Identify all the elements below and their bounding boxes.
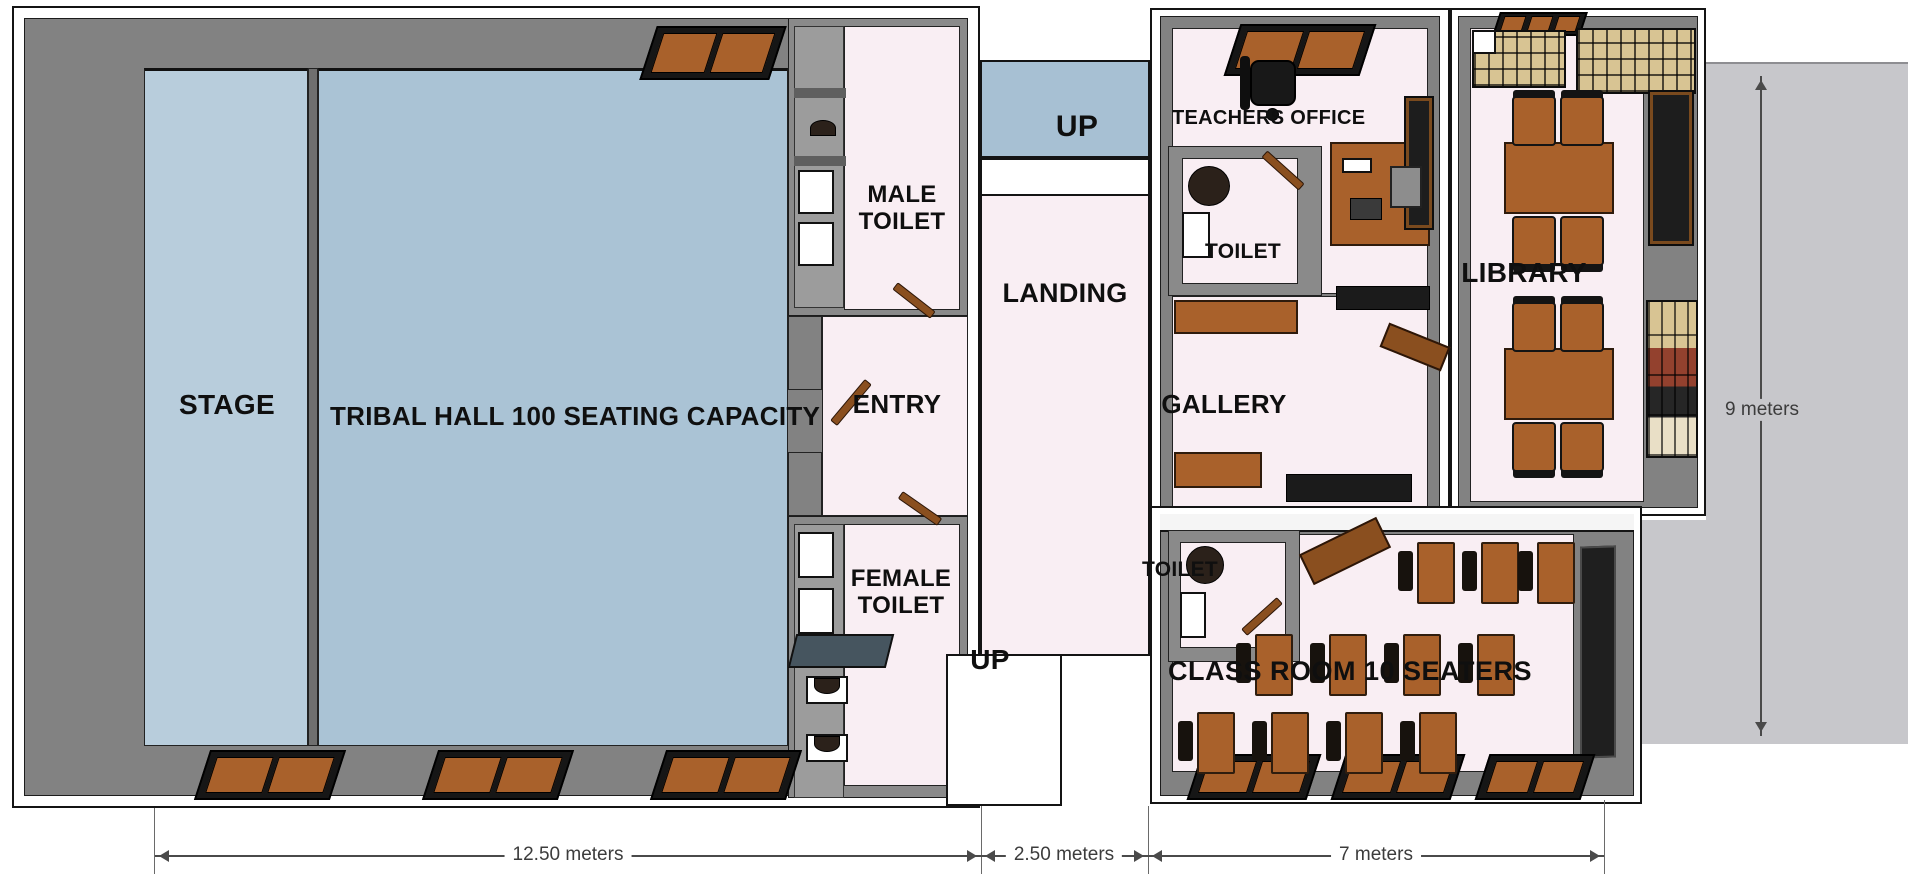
library-side-window: [1650, 92, 1692, 244]
stair-lower: [946, 654, 1062, 806]
gallery-desk-bottom: [1286, 474, 1412, 502]
teachers-office-label: TEACHERS OFFICE: [1172, 107, 1362, 129]
computer-keyboard: [1350, 198, 1382, 220]
basin-bowl: [814, 736, 840, 752]
library-chair: [1512, 96, 1556, 146]
student-desk: [1178, 712, 1232, 770]
entry-wall-upper: [788, 316, 822, 390]
student-desk: [1462, 542, 1516, 600]
hall-window-3: [650, 750, 802, 800]
library-chair: [1560, 96, 1604, 146]
student-desk: [1400, 712, 1454, 770]
hall-label: TRIBAL HALL 100 SEATING CAPACITY: [330, 402, 820, 431]
entry-label: ENTRY: [836, 390, 958, 419]
extension-line: [154, 808, 155, 874]
library-table: [1504, 142, 1614, 214]
library-chair: [1512, 422, 1556, 472]
student-desk: [1518, 542, 1572, 600]
bookshelf-end: [1472, 30, 1496, 54]
landing-floor: [980, 196, 1150, 656]
student-desk: [1398, 542, 1452, 600]
office-toilet-label: TOILET: [1182, 240, 1304, 264]
hall-window-1: [194, 750, 346, 800]
gallery-bench: [1174, 452, 1262, 488]
library-table: [1504, 348, 1614, 420]
hall-width-label: 12.50 meters: [505, 844, 632, 866]
classroom-toilet-label: TOILET: [1124, 558, 1236, 582]
hall-roof-vent: [639, 26, 787, 80]
library-chair: [1560, 302, 1604, 352]
toilet-person: [1188, 166, 1230, 206]
wc-fixture: [798, 170, 834, 214]
female-toilet-label: FEMALE TOILET: [826, 566, 976, 620]
landing-label: LANDING: [973, 278, 1157, 308]
classroom-label: CLASS ROOM 10 SEATERS: [1168, 656, 1508, 686]
library-chair: [1560, 422, 1604, 472]
desk-paper: [1342, 158, 1372, 173]
gallery-counter: [1174, 300, 1298, 334]
blackboard: [1580, 545, 1616, 758]
gallery-table: [1336, 286, 1430, 310]
student-desk: [1326, 712, 1380, 770]
side-annotation-area-lower: [1642, 520, 1708, 744]
stair-lower-label: UP: [950, 644, 1030, 675]
stage-label: STAGE: [145, 389, 309, 420]
gallery-label: GALLERY: [1140, 390, 1308, 419]
stall-partition: [794, 88, 846, 98]
office-chair-back: [1240, 56, 1250, 110]
library-top-bookshelf-2: [1576, 28, 1696, 94]
classroom-width-label: 7 meters: [1331, 844, 1421, 866]
library-label: LIBRARY: [1440, 257, 1608, 288]
hall-window-2: [422, 750, 574, 800]
stage-divider-wall: [308, 68, 318, 746]
toilet-sink: [1180, 592, 1206, 638]
library-chair: [1512, 302, 1556, 352]
washroom-counter: [788, 634, 894, 668]
toilet-bowl: [810, 120, 836, 136]
depth-dimension-label: 9 meters: [1717, 399, 1807, 421]
classroom-window-3: [1475, 754, 1596, 800]
stair-landing-edge: [980, 158, 1150, 196]
library-wall-bookshelf: [1646, 300, 1698, 458]
student-desk: [1252, 712, 1306, 770]
wc-fixture: [798, 222, 834, 266]
male-toilet-floor: [844, 26, 960, 310]
entry-wall-lower: [788, 452, 822, 516]
stair-upper-label: UP: [1027, 110, 1127, 144]
office-side-window: [1406, 98, 1432, 228]
male-toilet-label: MALE TOILET: [832, 182, 972, 236]
office-chair: [1250, 60, 1296, 106]
basin-bowl: [814, 678, 840, 694]
extension-line: [1604, 800, 1605, 874]
floor-plan: 9 meters STAGE TRIBAL HALL 100 SEATING C…: [0, 0, 1920, 881]
extension-line: [981, 806, 982, 874]
extension-line: [1148, 806, 1149, 874]
stairs-width-label: 2.50 meters: [1006, 844, 1122, 866]
computer-monitor: [1390, 166, 1422, 208]
stall-partition: [794, 156, 846, 166]
